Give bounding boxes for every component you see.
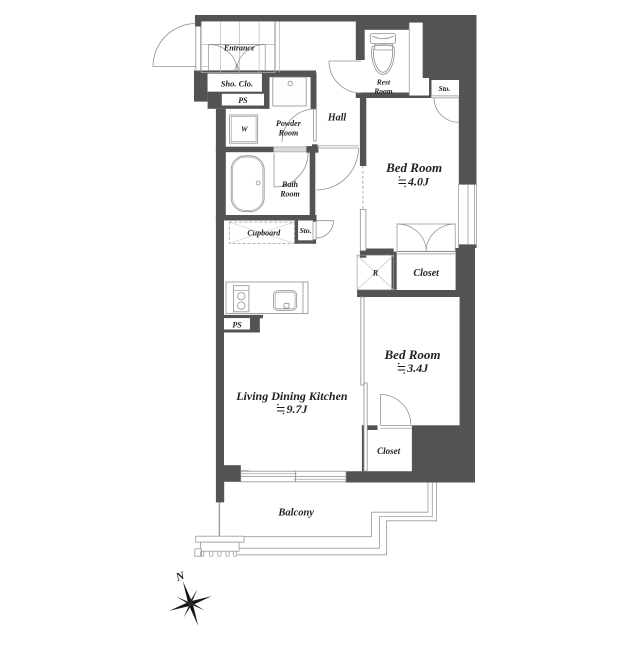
svg-text:Sho. Clo.: Sho. Clo. (221, 79, 253, 89)
svg-text:R: R (372, 269, 379, 278)
svg-text:Entrance: Entrance (223, 44, 255, 53)
svg-text:Powder: Powder (276, 119, 302, 128)
svg-text:Hall: Hall (327, 113, 347, 124)
svg-text:Balcony: Balcony (277, 508, 314, 519)
svg-text:Closet: Closet (413, 268, 440, 279)
svg-text:4.0J: 4.0J (407, 175, 430, 189)
svg-text:Cupboard: Cupboard (247, 228, 281, 237)
svg-text:Room: Room (278, 129, 299, 138)
svg-text:Rest: Rest (376, 77, 391, 86)
svg-text:Bed Room: Bed Room (385, 160, 442, 175)
svg-text:3.4J: 3.4J (406, 361, 429, 375)
svg-text:Living Dining Kitchen: Living Dining Kitchen (235, 389, 348, 403)
svg-text:Closet: Closet (377, 446, 401, 456)
svg-text:Room: Room (373, 86, 393, 95)
svg-text:Room: Room (279, 190, 300, 199)
svg-text:Sto.: Sto. (439, 84, 451, 93)
svg-text:PS: PS (238, 96, 248, 105)
svg-text:Bath: Bath (281, 180, 299, 189)
svg-text:Bed Room: Bed Room (384, 347, 441, 362)
svg-text:Sto.: Sto. (300, 226, 312, 235)
svg-text:PS: PS (232, 320, 242, 329)
svg-text:9.7J: 9.7J (287, 402, 309, 416)
